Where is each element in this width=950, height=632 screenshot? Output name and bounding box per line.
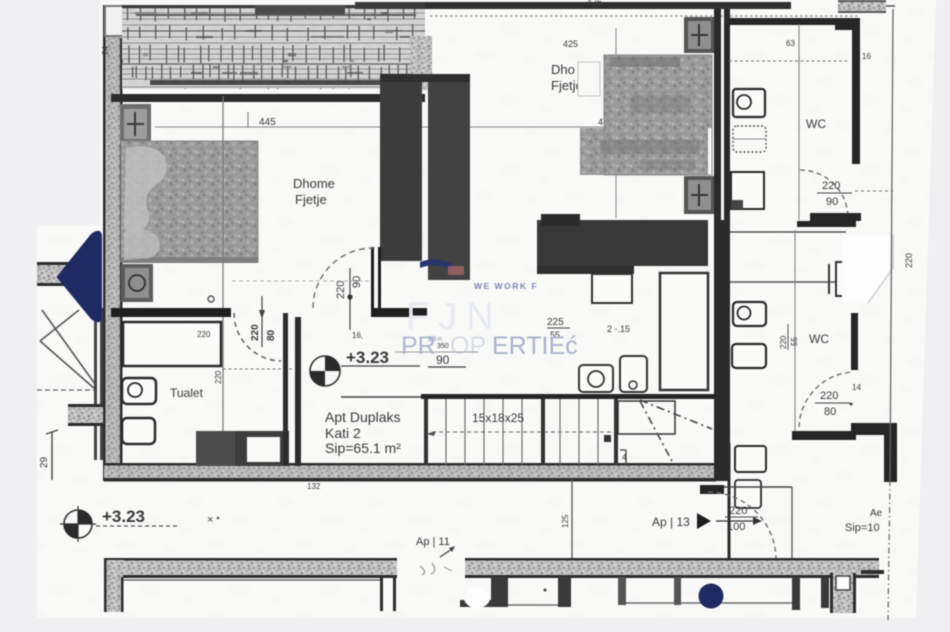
svg-text:80: 80 [824,406,836,418]
svg-text:4: 4 [622,453,627,462]
svg-text:Ae: Ae [870,508,883,519]
svg-text:WC: WC [809,332,829,346]
svg-text:2 -.15: 2 -.15 [607,324,630,334]
svg-text:24: 24 [101,46,110,55]
svg-text:+3.23: +3.23 [346,348,389,367]
svg-text:220: 220 [904,253,914,268]
svg-text:Apt Duplaks: Apt Duplaks [325,409,400,425]
svg-text:Ap | 11: Ap | 11 [416,536,450,548]
svg-text:220: 220 [197,330,211,339]
svg-text:100: 100 [727,521,745,533]
svg-text:OP: OP [450,332,486,360]
svg-text:90: 90 [351,276,363,288]
svg-text:×: × [207,514,213,526]
svg-text:Sip=65.1 m²: Sip=65.1 m² [325,440,401,456]
svg-text:14: 14 [852,383,861,392]
svg-text:Kati 2: Kati 2 [325,425,361,441]
svg-text:WC: WC [806,117,826,131]
svg-text:Tualet: Tualet [170,386,204,400]
svg-text:29: 29 [39,456,50,468]
svg-text:16: 16 [862,52,871,61]
svg-text:220: 220 [820,390,838,402]
svg-text:Sip=10: Sip=10 [845,522,880,534]
svg-text:225: 225 [547,317,564,328]
svg-text:Fjetje: Fjetje [295,192,327,207]
svg-text:445: 445 [259,117,276,128]
svg-text:220: 220 [335,281,347,299]
svg-text:WE WORK F: WE WORK F [474,281,538,291]
svg-text:132: 132 [307,482,321,491]
svg-text:Dhome: Dhome [293,176,335,191]
svg-text:220: 220 [779,335,788,349]
svg-text:425: 425 [587,0,602,7]
svg-text:425: 425 [563,39,578,49]
svg-text:ERTIEć: ERTIEć [492,332,578,360]
svg-text:220: 220 [214,370,223,384]
svg-text:350: 350 [437,343,449,350]
svg-text:15x18x25: 15x18x25 [472,411,524,425]
svg-text:80: 80 [266,329,277,341]
svg-text:220: 220 [729,505,747,517]
svg-text:220: 220 [250,324,261,341]
svg-text:125: 125 [561,514,570,528]
svg-text:90: 90 [436,353,450,367]
svg-text:220: 220 [822,180,840,192]
svg-text:Ap | 13: Ap | 13 [652,515,690,529]
svg-text:16,: 16, [352,331,363,340]
svg-text:63: 63 [786,39,795,48]
svg-text:28-n: 28-n [428,336,442,343]
svg-text:+3.23: +3.23 [102,507,145,526]
svg-text:90: 90 [826,196,838,208]
svg-text:Dho: Dho [551,62,575,77]
